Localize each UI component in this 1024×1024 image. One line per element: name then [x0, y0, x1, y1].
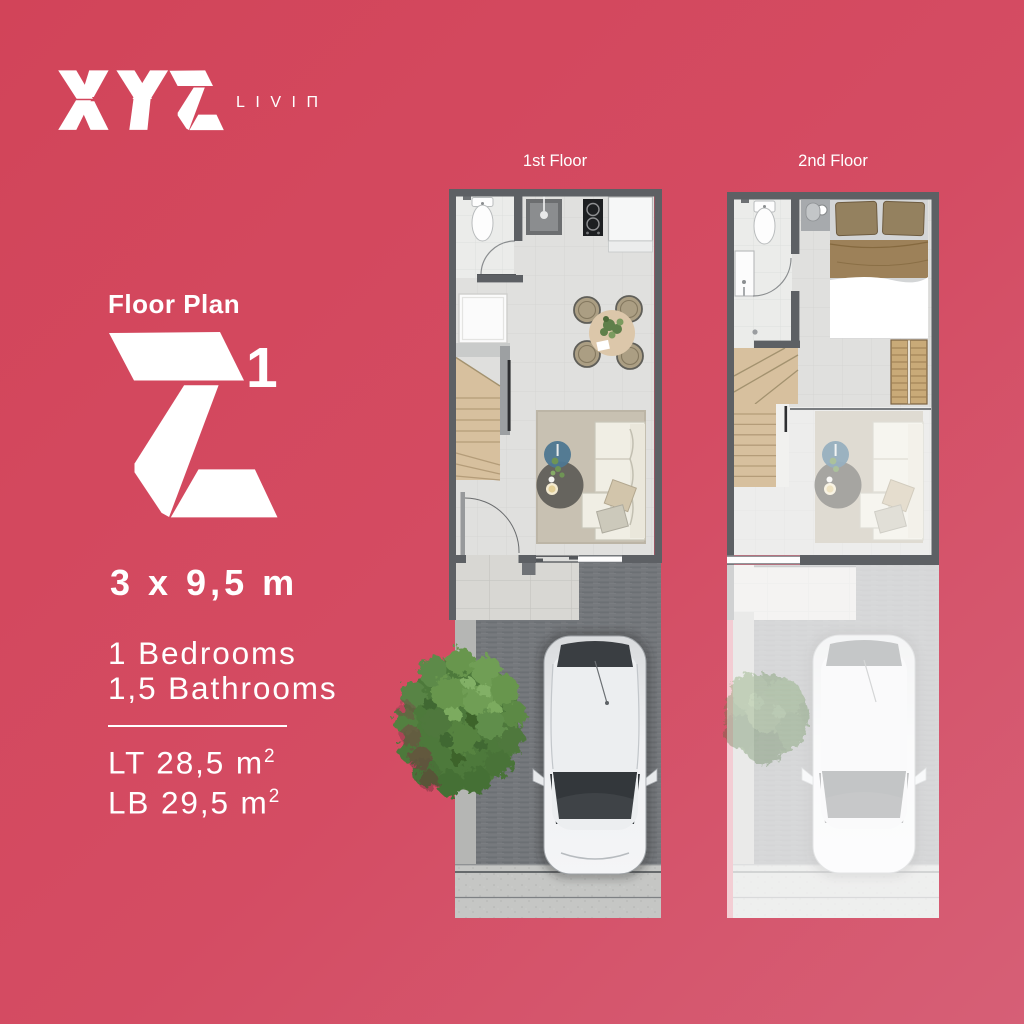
svg-text:1: 1	[246, 336, 278, 400]
svg-text:LIVIΠ: LIVIΠ	[236, 94, 329, 111]
